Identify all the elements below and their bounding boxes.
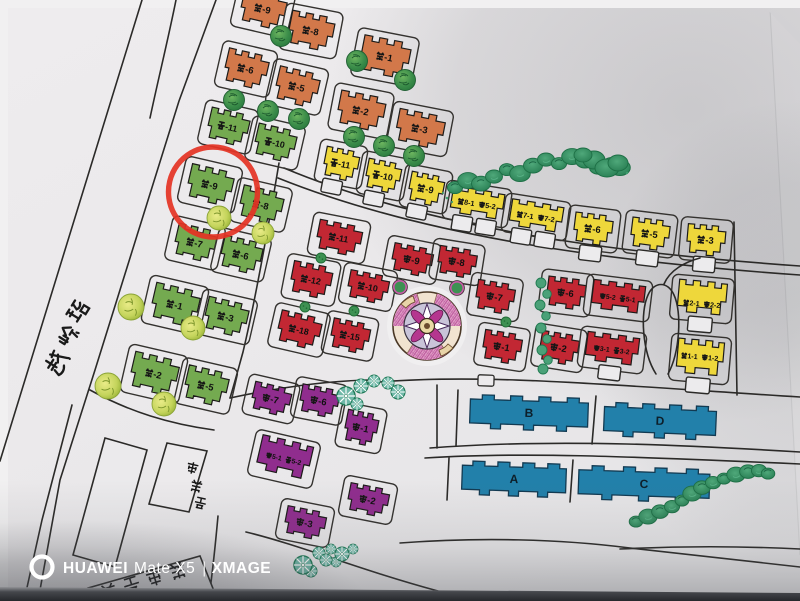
svg-text:5-2: 5-2 bbox=[605, 294, 616, 302]
svg-text:5-1: 5-1 bbox=[625, 296, 636, 304]
svg-text:-3: -3 bbox=[705, 234, 714, 246]
svg-text:2-1: 2-1 bbox=[689, 299, 700, 308]
svg-text:5-2: 5-2 bbox=[485, 201, 497, 212]
svg-text:-6: -6 bbox=[592, 223, 602, 235]
svg-text:-1: -1 bbox=[501, 341, 511, 353]
svg-text:3-2: 3-2 bbox=[619, 348, 630, 356]
svg-text:D: D bbox=[655, 414, 665, 428]
svg-text:2-2: 2-2 bbox=[710, 301, 721, 310]
svg-text:-5: -5 bbox=[649, 228, 659, 240]
svg-text:3-1: 3-1 bbox=[599, 346, 610, 354]
svg-text:1-2: 1-2 bbox=[708, 354, 719, 363]
svg-text:1-1: 1-1 bbox=[687, 352, 698, 361]
svg-text:-7: -7 bbox=[494, 291, 504, 303]
svg-text:-2: -2 bbox=[558, 342, 568, 354]
svg-text:8-1: 8-1 bbox=[463, 198, 475, 209]
svg-text:7-1: 7-1 bbox=[522, 211, 534, 222]
svg-text:-6: -6 bbox=[565, 287, 575, 299]
svg-text:7-2: 7-2 bbox=[544, 214, 556, 225]
svg-text:-8: -8 bbox=[456, 256, 466, 268]
svg-text:B: B bbox=[524, 406, 533, 420]
svg-text:HUAWEIMate X5|XMAGE: HUAWEIMate X5|XMAGE bbox=[63, 560, 271, 577]
